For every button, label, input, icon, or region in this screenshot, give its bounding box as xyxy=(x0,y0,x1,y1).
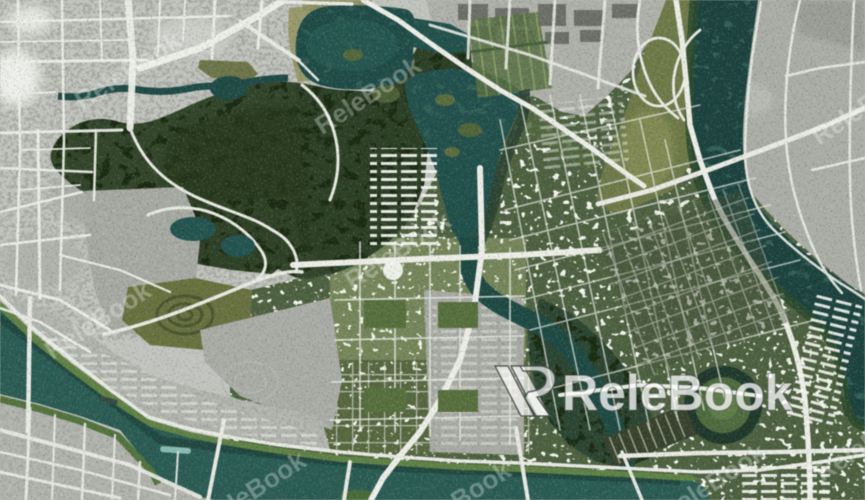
svg-text:ReleBook: ReleBook xyxy=(562,365,793,421)
